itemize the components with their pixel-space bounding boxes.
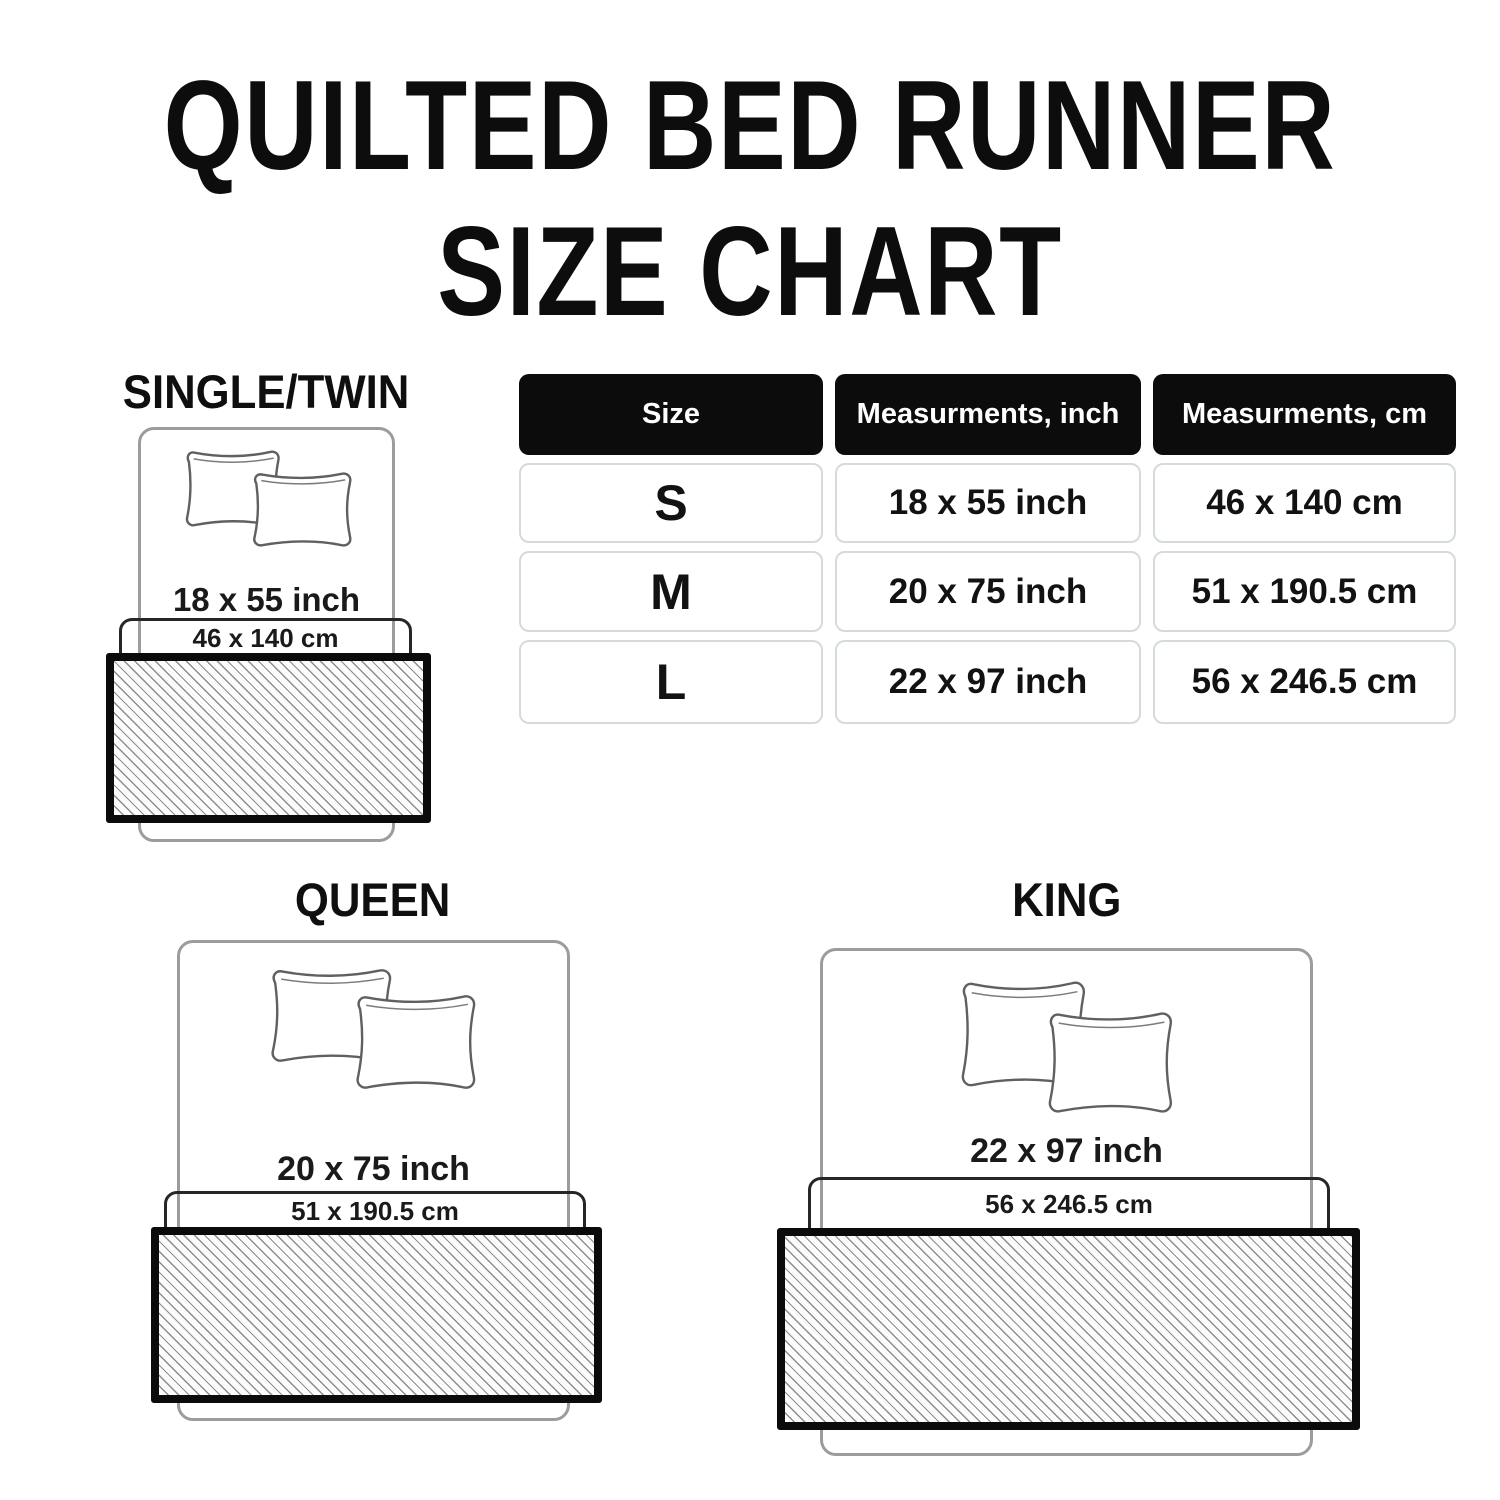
table-cell-inch: 20 x 75 inch — [835, 551, 1141, 632]
table-cell-cm: 56 x 246.5 cm — [1153, 640, 1456, 724]
page-title-line2: SIZE CHART — [437, 198, 1063, 344]
table-header-inch: Measurments, inch — [835, 374, 1141, 455]
page-title: QUILTED BED RUNNER SIZE CHART — [0, 52, 1500, 344]
inch-measurement-label: 18 x 55 inch — [118, 581, 415, 619]
diagram-label-single-twin: SINGLE/TWIN — [36, 364, 496, 419]
table-header-cm: Measurments, cm — [1153, 374, 1456, 455]
bed-runner-swatch — [106, 653, 431, 823]
inch-measurement-label: 20 x 75 inch — [177, 1150, 570, 1189]
bed-runner-swatch — [151, 1227, 602, 1403]
pillow-icon — [248, 471, 356, 548]
table-cell-size: M — [519, 551, 823, 632]
inch-measurement-label: 22 x 97 inch — [820, 1132, 1313, 1171]
pillow-icon — [350, 993, 481, 1091]
table-header-size: Size — [519, 374, 823, 455]
cm-measurement-label: 51 x 190.5 cm — [164, 1196, 586, 1227]
table-cell-inch: 18 x 55 inch — [835, 463, 1141, 543]
table-cell-cm: 51 x 190.5 cm — [1153, 551, 1456, 632]
diagram-label-king: KING — [837, 872, 1297, 927]
size-chart-infographic: QUILTED BED RUNNER SIZE CHART SINGLE/TWI… — [0, 0, 1500, 1500]
diagram-label-queen: QUEEN — [143, 872, 603, 927]
table-cell-size: S — [519, 463, 823, 543]
cm-measurement-label: 56 x 246.5 cm — [808, 1189, 1330, 1220]
table-cell-inch: 22 x 97 inch — [835, 640, 1141, 724]
table-cell-cm: 46 x 140 cm — [1153, 463, 1456, 543]
pillow-icon — [1042, 1010, 1178, 1115]
table-cell-size: L — [519, 640, 823, 724]
bed-runner-swatch — [777, 1228, 1360, 1430]
cm-measurement-label: 46 x 140 cm — [119, 623, 412, 654]
page-title-line1: QUILTED BED RUNNER — [164, 52, 1337, 198]
size-table: Size Measurments, inch Measurments, cm S… — [519, 374, 1456, 724]
